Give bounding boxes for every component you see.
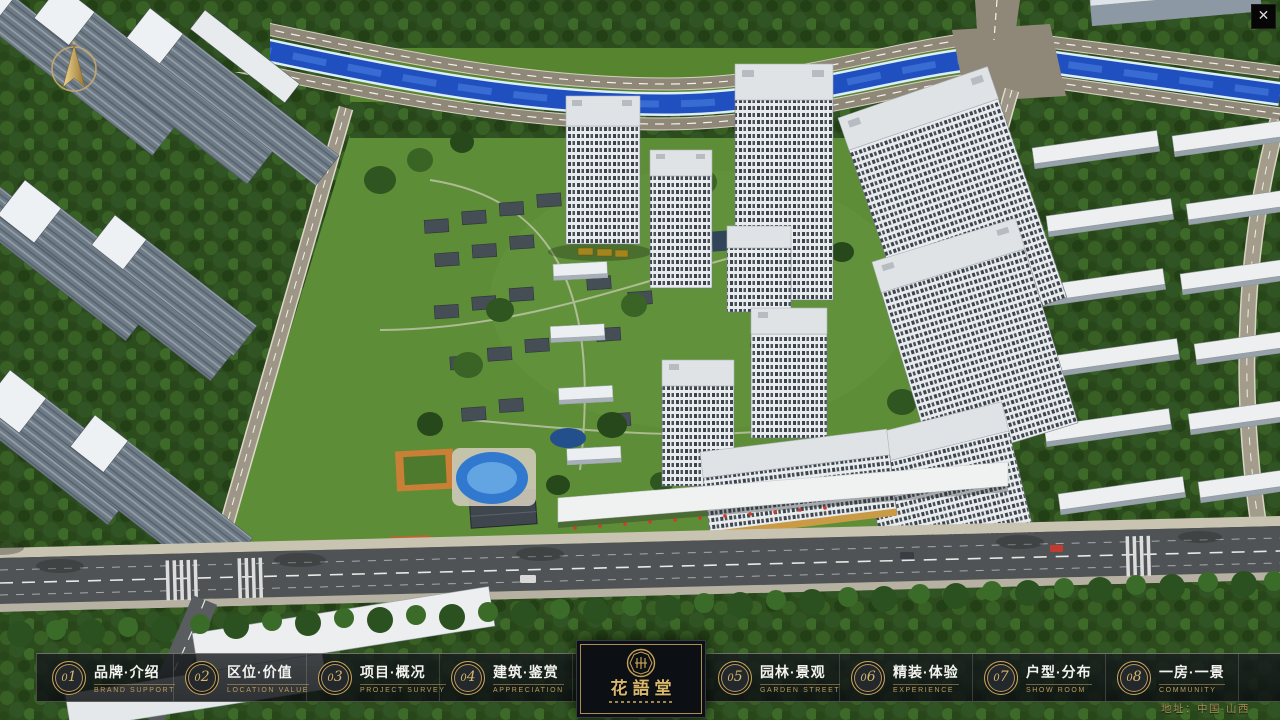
menu-badge: 03 (318, 661, 352, 695)
menu-badge: 04 (451, 661, 485, 695)
menu-label-en: COMMUNITY (1159, 684, 1225, 694)
menu-item-garden[interactable]: 05 园林·景观GARDEN STREET (707, 654, 840, 701)
menu-badge: 05 (718, 661, 752, 695)
presentation-screen: ✕ 01 品牌·介绍BRAND SUPPORT 02 区位·价值LOCATION… (0, 0, 1280, 720)
menu-badge: 02 (185, 661, 219, 695)
menu-item-architecture[interactable]: 04 建筑·鉴赏APPRECIATION (440, 654, 573, 701)
address-label: 地址：中国·山西 (1161, 701, 1250, 716)
menu-badge: 01 (52, 661, 86, 695)
menu-label-zh: 品牌·介绍 (94, 662, 175, 682)
menu-badge: 06 (851, 661, 885, 695)
menu-label-en: SHOW ROOM (1026, 684, 1092, 694)
menu-label-en: APPRECIATION (493, 684, 564, 694)
menu-label-zh: 户型·分布 (1026, 662, 1092, 682)
menu-label-zh: 一房·一景 (1159, 662, 1225, 682)
close-icon: ✕ (1258, 8, 1270, 24)
menu-label-zh: 建筑·鉴赏 (493, 662, 564, 682)
close-button[interactable]: ✕ (1251, 4, 1276, 29)
menu-item-project[interactable]: 03 项目·概况PROJECT SURVEY (307, 654, 440, 701)
menu-label-zh: 项目·概况 (360, 662, 446, 682)
menu-label-zh: 区位·价值 (227, 662, 309, 682)
hua-yu-tang-seal-icon (626, 648, 656, 678)
menu-item-interior[interactable]: 06 精装·体验EXPERIENCE (840, 654, 973, 701)
menu-label-en: GARDEN STREET (760, 684, 840, 694)
logo-title: 花語堂 (606, 679, 677, 699)
menu-badge: 08 (1117, 661, 1151, 695)
menu-item-views[interactable]: 08 一房·一景COMMUNITY (1106, 654, 1239, 701)
menu-item-floorplan[interactable]: 07 户型·分布SHOW ROOM (973, 654, 1106, 701)
menu-item-brand[interactable]: 01 品牌·介绍BRAND SUPPORT (41, 654, 174, 701)
aerial-site-render (0, 0, 1280, 720)
menu-label-en: BRAND SUPPORT (94, 684, 175, 694)
menu-label-en: EXPERIENCE (893, 684, 959, 694)
menu-label-zh: 精装·体验 (893, 662, 959, 682)
logo-divider (609, 701, 673, 703)
menu-label-en: PROJECT SURVEY (360, 684, 446, 694)
logo-panel[interactable]: 花語堂 (576, 640, 706, 718)
menu-item-location[interactable]: 02 区位·价值LOCATION VALUE (174, 654, 307, 701)
menu-label-en: LOCATION VALUE (227, 684, 309, 694)
menu-label-zh: 园林·景观 (760, 662, 840, 682)
menu-badge: 07 (984, 661, 1018, 695)
